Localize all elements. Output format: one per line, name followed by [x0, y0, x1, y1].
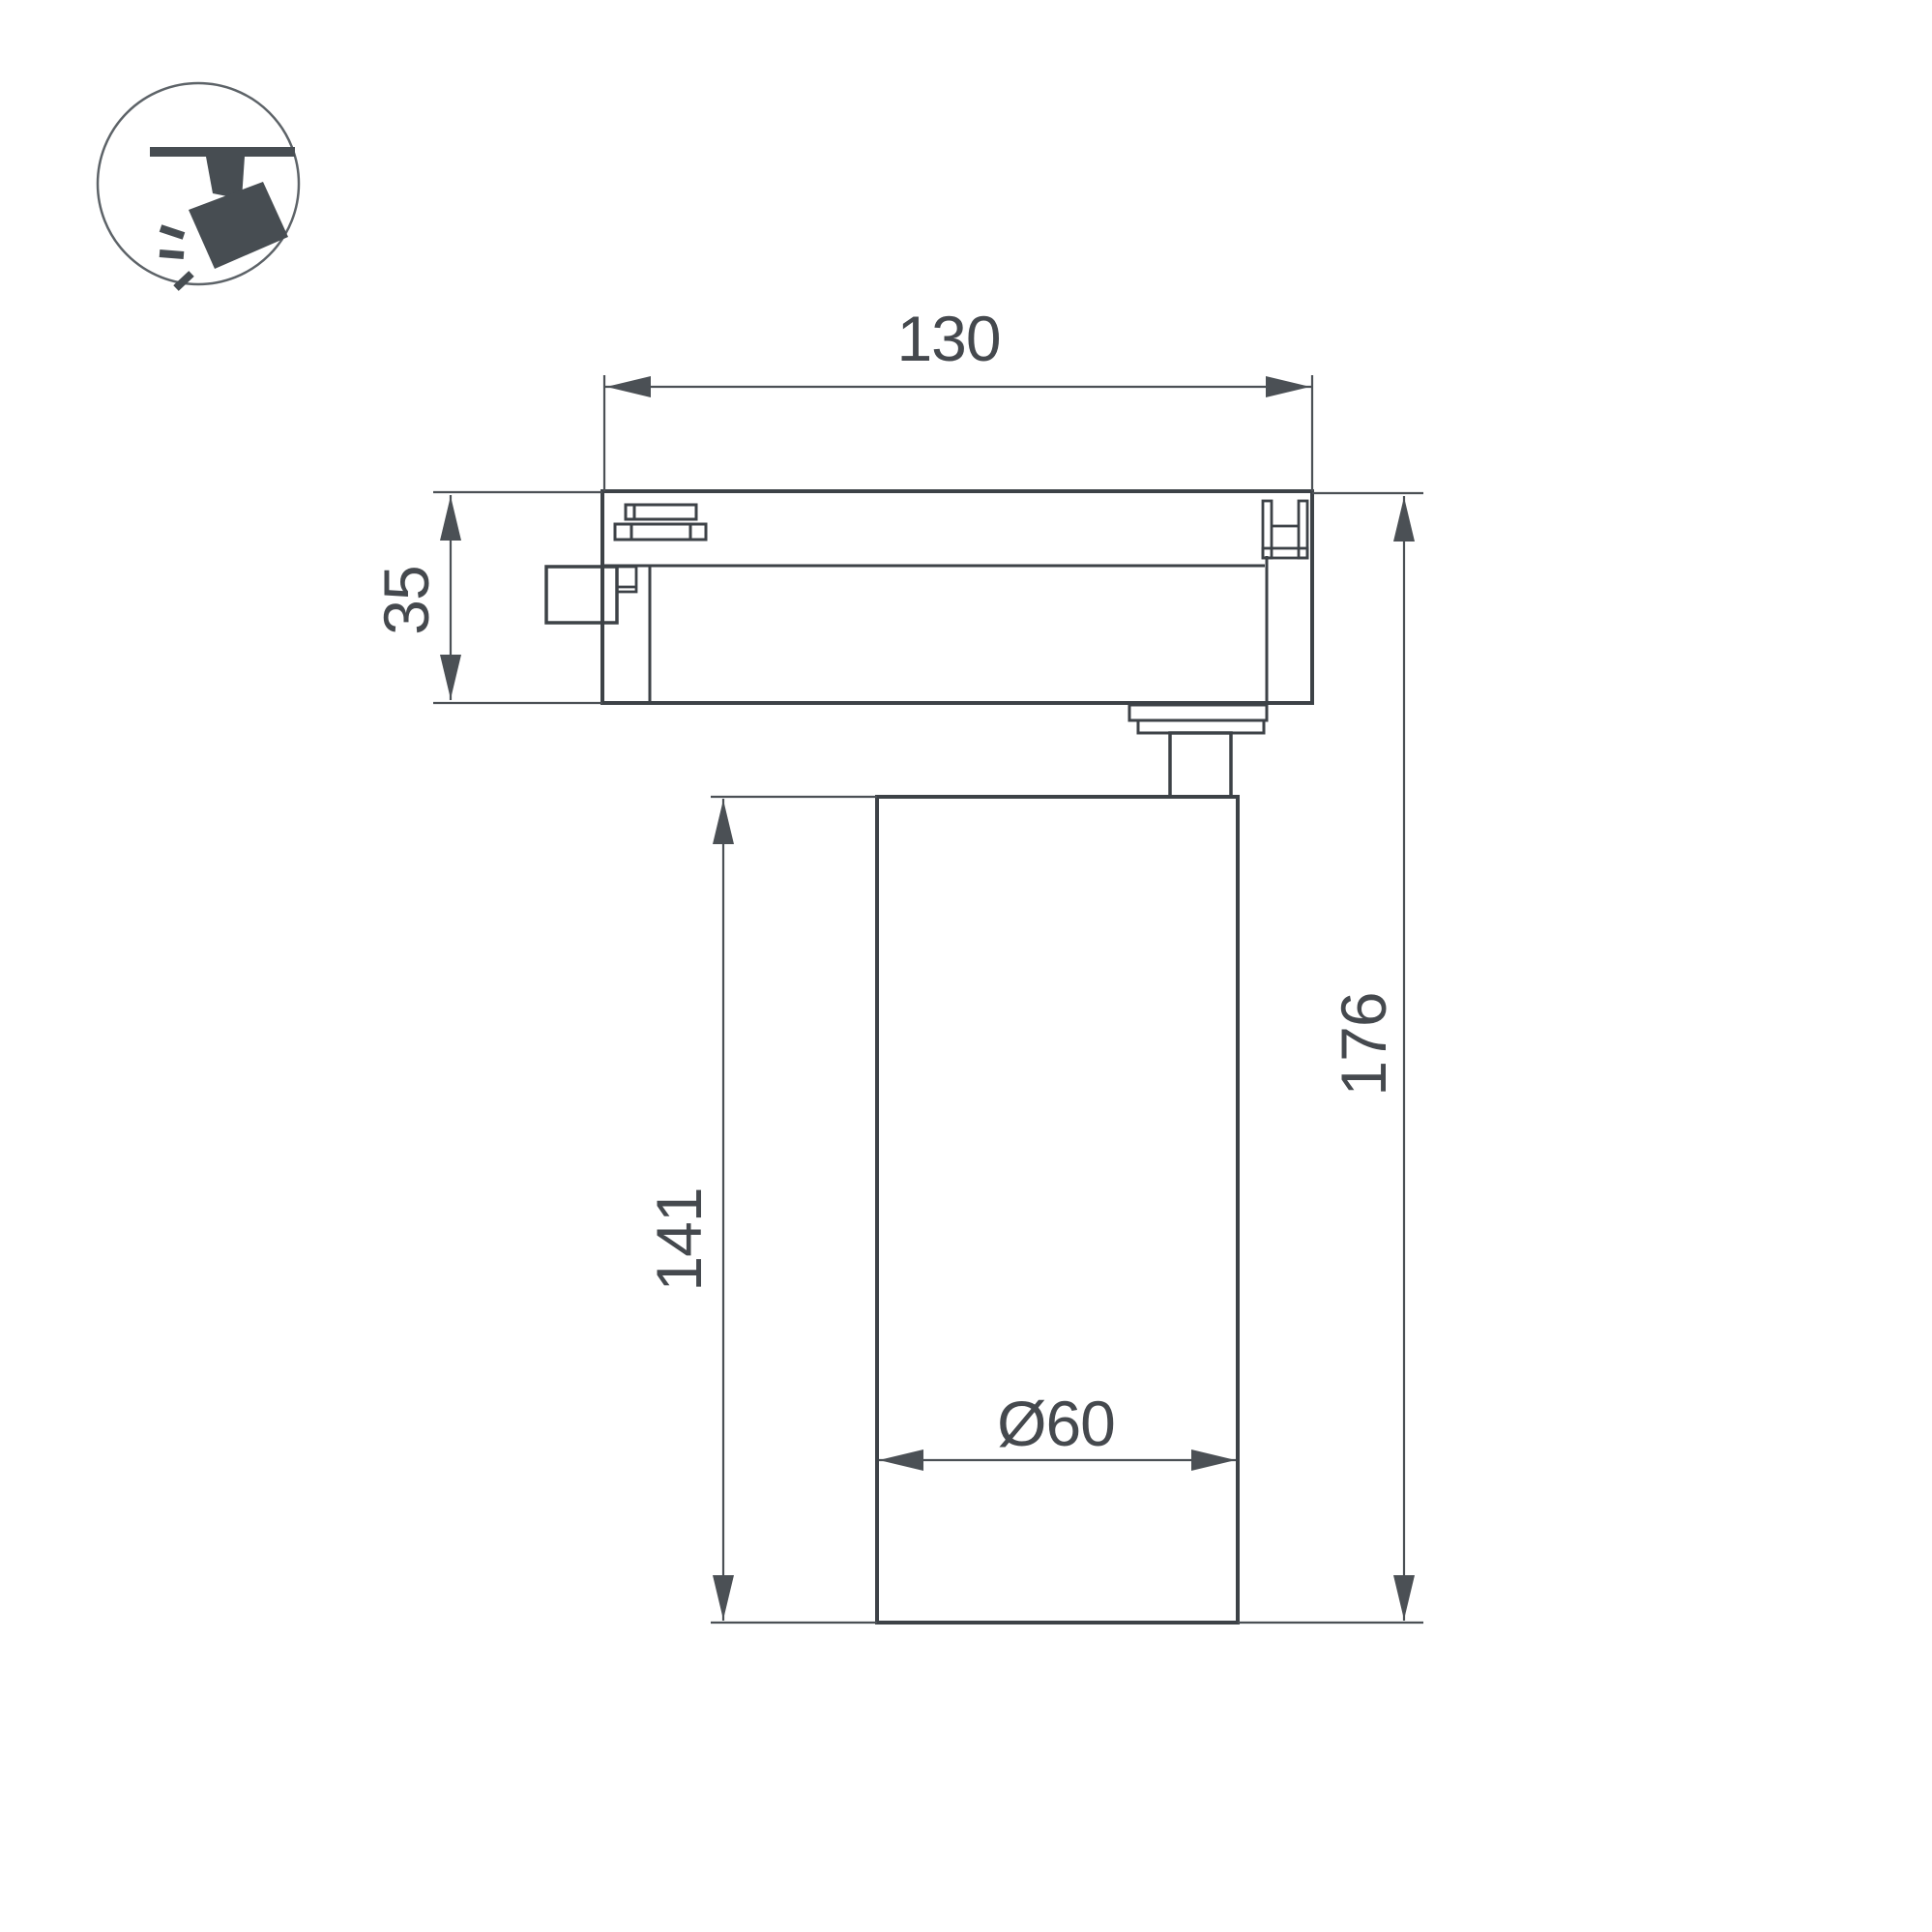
dim-label-track-width: 130: [896, 303, 1000, 374]
arrowhead-up: [1393, 497, 1415, 542]
adapter-contact-clips: [615, 505, 706, 540]
dimension-adapter-height: 35: [370, 492, 602, 703]
icon-lamp-body: [189, 182, 288, 269]
technical-drawing: 130 35 141 176: [0, 0, 1932, 1932]
dim-label-adapter-height: 35: [370, 566, 442, 634]
lamp-cylinder-body: [877, 797, 1238, 1623]
arrowhead-down: [713, 1575, 734, 1620]
adapter-lock-lever: [546, 567, 617, 623]
dim-label-body-length: 141: [643, 1187, 715, 1291]
drawing-canvas: 130 35 141 176: [0, 0, 1932, 1932]
arrowhead-right: [1191, 1449, 1236, 1471]
track-spotlight-icon: [98, 83, 299, 288]
adapter-right-clamp: [1263, 501, 1307, 558]
adapter-lock-notch: [617, 567, 636, 592]
arrowhead-up: [440, 496, 461, 541]
dimension-track-width: 130: [604, 303, 1312, 491]
dim-label-body-diameter: Ø60: [997, 1388, 1115, 1459]
arrowhead-down: [1393, 1575, 1415, 1620]
arrowhead-left: [879, 1449, 923, 1471]
joint-flange-lower: [1138, 720, 1264, 733]
arrowhead-right: [1266, 376, 1310, 397]
joint-flange-upper: [1129, 705, 1267, 720]
dimension-body-diameter: Ø60: [879, 1388, 1236, 1471]
arrowhead-up: [713, 800, 734, 844]
arrowhead-left: [606, 376, 651, 397]
dim-label-total-height: 176: [1328, 992, 1399, 1096]
dimension-body-length: 141: [643, 797, 877, 1623]
arrowhead-down: [440, 655, 461, 699]
icon-track-bar: [150, 147, 295, 157]
joint-stem: [1170, 733, 1231, 797]
track-adapter-body: [602, 491, 1312, 703]
icon-ring: [98, 83, 299, 284]
